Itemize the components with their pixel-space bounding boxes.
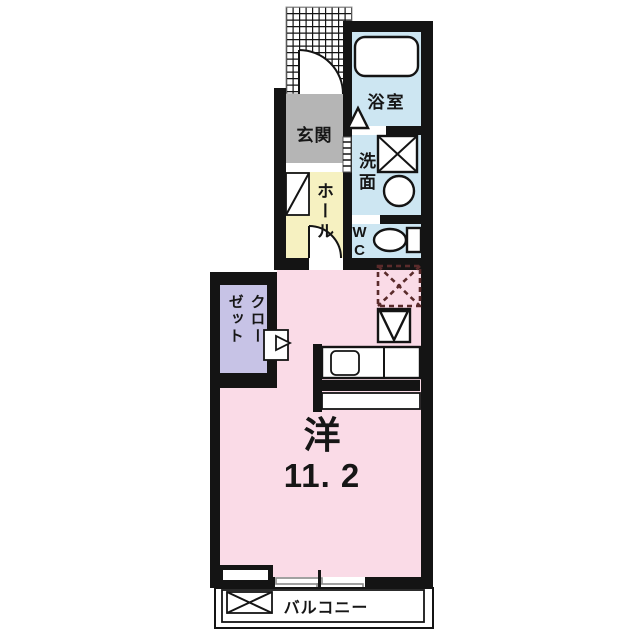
main-room-area-value: 11. 2 xyxy=(242,458,402,494)
bathtub xyxy=(355,37,418,76)
main-room-label: 洋 11. 2 xyxy=(242,415,402,494)
closet-label: クロー ゼット xyxy=(224,294,268,368)
genkan-label: 玄関 xyxy=(286,121,343,146)
closet-door xyxy=(264,330,290,360)
floor-plan-drawing xyxy=(0,0,640,640)
closet-label-col-left: ゼット xyxy=(224,294,246,368)
balcony-equipment-box xyxy=(227,592,272,613)
washroom-label: 洗面 xyxy=(353,152,378,202)
shoe-cabinet xyxy=(286,173,309,215)
wc-label: WC xyxy=(351,224,368,258)
kitchen-sink xyxy=(331,351,359,375)
hall-label: ホール xyxy=(311,182,336,260)
kitchen-counter xyxy=(322,347,420,378)
washbasin xyxy=(384,176,414,206)
toilet xyxy=(374,228,421,252)
balcony-label: バルコニー xyxy=(276,594,376,618)
kitchen-shelf xyxy=(322,393,420,409)
side-window-slot xyxy=(223,570,268,580)
main-room-name: 洋 xyxy=(242,415,402,458)
washing-machine-pan xyxy=(378,136,417,172)
water-heater xyxy=(378,309,410,342)
wc-door-opening xyxy=(352,215,380,224)
accordion-door xyxy=(343,137,351,172)
floor-plan: 浴室 玄関 ホール 洗面 WC クロー ゼット 洋 11. 2 バルコニー xyxy=(0,0,640,640)
bath-label: 浴室 xyxy=(352,88,421,113)
closet-label-col-right: クロー xyxy=(246,294,268,368)
genkan-step xyxy=(286,163,343,172)
